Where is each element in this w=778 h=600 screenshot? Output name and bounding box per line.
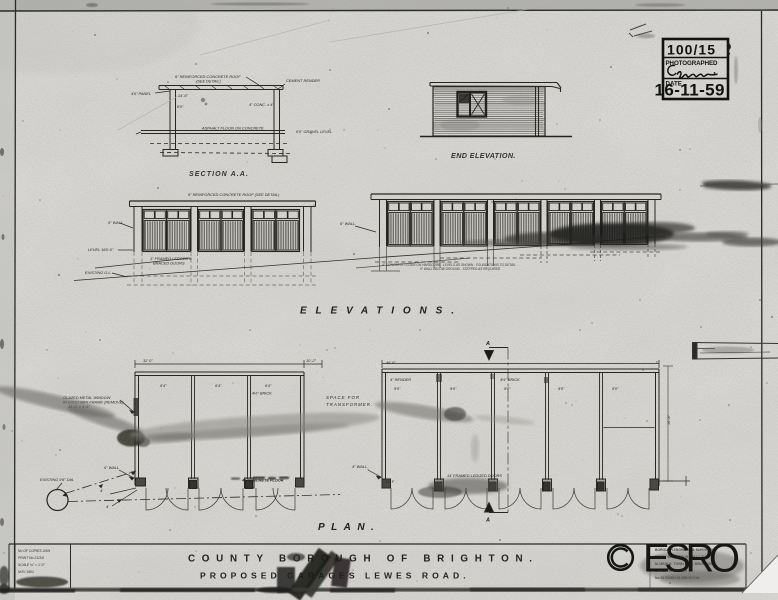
svg-text:4" RENDER: 4" RENDER — [390, 377, 411, 382]
svg-text:END ELEVATION.: END ELEVATION. — [451, 151, 516, 160]
svg-text:32' 0": 32' 0" — [143, 358, 153, 363]
svg-text:14" F: 14" F — [385, 479, 395, 484]
svg-text:EXISTING G.L.: EXISTING G.L. — [85, 270, 112, 275]
svg-text:ESRO: ESRO — [643, 537, 740, 581]
svg-text:4½" BRICK: 4½" BRICK — [500, 377, 520, 382]
svg-text:16'-8": 16'-8" — [666, 414, 671, 425]
svg-text:6" REINFORCED CONCRETE ROOF (S: 6" REINFORCED CONCRETE ROOF (SEE DETAIL) — [188, 192, 280, 197]
svg-text:COUNTY BOROUGH OF BRIGHTON.: COUNTY BOROUGH OF BRIGHTON. — [188, 554, 538, 565]
svg-text:6'4": 6'4" — [265, 383, 272, 388]
svg-text:SPACE FOR: SPACE FOR — [326, 395, 360, 400]
svg-text:4" CONCRETE FLOOR: 4" CONCRETE FLOOR — [241, 478, 284, 483]
svg-text:TRANSFORMER.: TRANSFORMER. — [326, 402, 373, 407]
svg-text:SCALE ¼" = 1'-0": SCALE ¼" = 1'-0" — [18, 563, 46, 567]
svg-text:NOV 1951: NOV 1951 — [18, 570, 34, 574]
svg-text:4½" BRICK: 4½" BRICK — [252, 391, 272, 396]
svg-text:4': 4' — [100, 488, 103, 493]
svg-text:No OF COPIES 2/6/4: No OF COPIES 2/6/4 — [18, 549, 50, 553]
svg-text:9'0": 9'0" — [612, 386, 619, 391]
svg-text:6" WALL: 6" WALL — [340, 221, 355, 226]
svg-text:A: A — [485, 341, 490, 347]
svg-text:100/15: 100/15 — [667, 42, 715, 58]
svg-text:9'0": 9'0" — [504, 386, 511, 391]
svg-text:9'0": 9'0" — [450, 386, 457, 391]
svg-text:SECTION A.A.: SECTION A.A. — [189, 171, 249, 178]
svg-text:4" CONC. x 4": 4" CONC. x 4" — [249, 102, 274, 107]
svg-text:6'4": 6'4" — [215, 383, 222, 388]
svg-text:6'4": 6'4" — [160, 383, 167, 388]
svg-text:16-11-59: 16-11-59 — [655, 81, 725, 100]
svg-text:9'0": 9'0" — [558, 386, 565, 391]
svg-text:A: A — [485, 518, 490, 524]
svg-text:ASPHALT FLOOR ON CONCRETE: ASPHALT FLOOR ON CONCRETE — [201, 126, 264, 131]
svg-text:6'0" GRAVEL LEVEL: 6'0" GRAVEL LEVEL — [296, 129, 332, 134]
svg-text:4'6" PANEL: 4'6" PANEL — [131, 91, 151, 96]
svg-text:9'0": 9'0" — [394, 386, 401, 391]
svg-text:PRINT No 21/3/4: PRINT No 21/3/4 — [18, 556, 44, 560]
svg-text:8'0": 8'0" — [177, 104, 184, 109]
svg-text:10'-2": 10'-2" — [306, 358, 317, 363]
svg-text:EXISTING 9'6" DIA.: EXISTING 9'6" DIA. — [40, 477, 74, 482]
svg-text:BRACED DOORS: BRACED DOORS — [153, 261, 185, 266]
svg-text:14' FRAMED LEDGED DOORS: 14' FRAMED LEDGED DOORS — [447, 473, 502, 478]
svg-text:(SEE DETAIL): (SEE DETAIL) — [196, 79, 221, 84]
svg-text:4': 4' — [106, 504, 109, 509]
svg-text:6" WALL BELOW GROUND . STEPPED: 6" WALL BELOW GROUND . STEPPED AS REQUIR… — [420, 267, 501, 271]
svg-text:6" WALL: 6" WALL — [108, 220, 123, 225]
svg-text:CEMENT RENDER: CEMENT RENDER — [286, 78, 320, 83]
svg-text:6" WALL: 6" WALL — [104, 465, 119, 470]
svg-text:46' 8": 46' 8" — [386, 360, 396, 365]
svg-text:LEVEL 169'-6": LEVEL 169'-6" — [88, 247, 114, 252]
svg-text:4" WALL: 4" WALL — [352, 464, 367, 469]
svg-text:ELEVATIONS.: ELEVATIONS. — [300, 306, 462, 317]
